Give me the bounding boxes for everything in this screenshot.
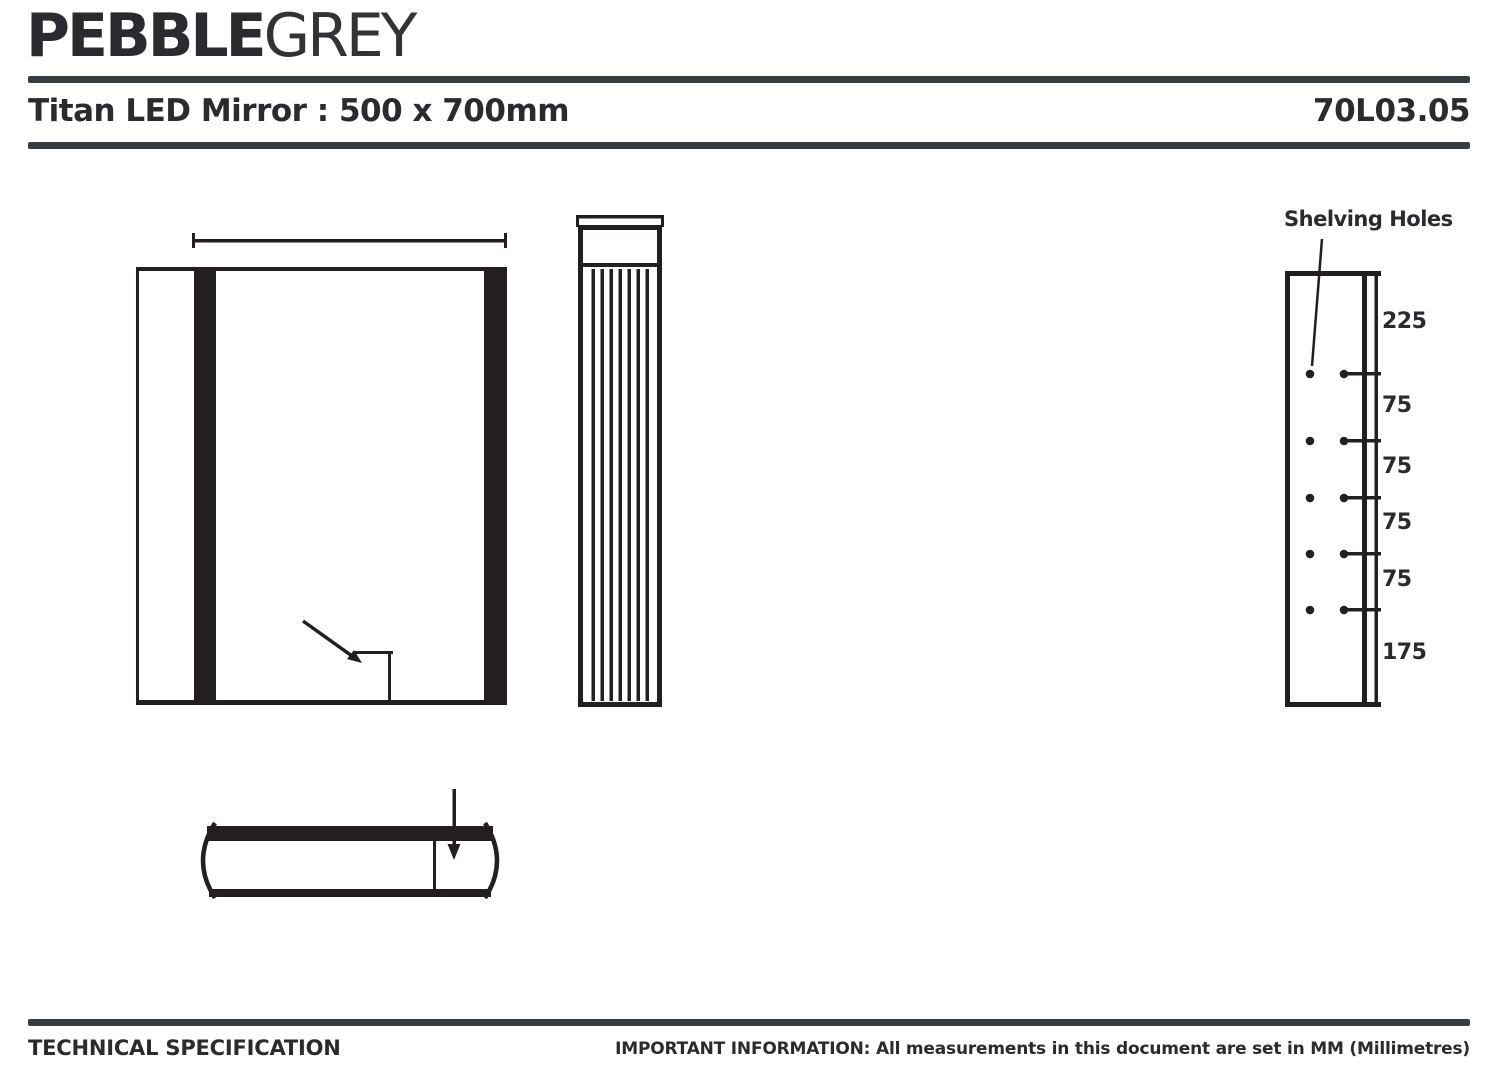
shelving-dim-75-3: 75 bbox=[1382, 512, 1412, 534]
spec-sheet-page: PEBBLEGREY Titan LED Mirror : 500 x 700m… bbox=[0, 0, 1500, 1072]
shelving-dim-75-2: 75 bbox=[1382, 456, 1412, 478]
bottom-view-top-band bbox=[207, 826, 493, 841]
shelving-dim-225: 225 bbox=[1382, 311, 1426, 333]
hole-dot bbox=[1306, 550, 1315, 559]
shelving-leader-line bbox=[1312, 239, 1322, 366]
hole-dot bbox=[1306, 437, 1315, 446]
mirror-top-edge bbox=[136, 267, 507, 271]
shelving-dim-175: 175 bbox=[1382, 642, 1426, 664]
hole-dot bbox=[1306, 494, 1315, 503]
shelving-holes bbox=[1306, 370, 1349, 615]
shelving-panel-bottom-edge bbox=[1285, 702, 1381, 707]
side-view-drawing bbox=[576, 215, 664, 705]
footer-note-prefix: IMPORTANT INFORMATION: bbox=[615, 1039, 870, 1059]
hole-dot bbox=[1340, 550, 1349, 559]
sensor-dimension-tick bbox=[355, 651, 393, 654]
bottom-view-bottom-edge bbox=[209, 889, 491, 897]
shelving-panel-outline bbox=[1288, 274, 1365, 705]
bottom-view-arrow-line bbox=[453, 789, 457, 847]
height-dimension-line bbox=[136, 267, 139, 705]
hole-dot bbox=[1340, 606, 1349, 615]
side-profile-divider bbox=[578, 263, 662, 267]
hole-dot bbox=[1306, 606, 1315, 615]
width-dimension-tick-right bbox=[504, 233, 507, 248]
hole-dot bbox=[1306, 370, 1315, 379]
led-strip-right bbox=[484, 271, 507, 701]
bottom-view-divider bbox=[433, 841, 436, 889]
bottom-view-arrowhead bbox=[448, 844, 461, 860]
width-dimension-line bbox=[193, 239, 507, 243]
hole-dot bbox=[1340, 494, 1349, 503]
shelving-panel-drawing bbox=[1285, 239, 1381, 707]
mirror-bottom-edge bbox=[136, 700, 507, 705]
sensor-dimension-line bbox=[388, 651, 391, 703]
footer-measurement-note: IMPORTANT INFORMATION: All measurements … bbox=[615, 1039, 1470, 1059]
technical-drawing-canvas bbox=[0, 0, 1500, 1072]
bottom-view-drawing bbox=[203, 789, 497, 898]
led-strip-left bbox=[194, 271, 216, 701]
footer-section-title: TECHNICAL SPECIFICATION bbox=[28, 1036, 341, 1060]
shelving-holes-label: Shelving Holes bbox=[1284, 207, 1453, 231]
depth-dimension-line bbox=[576, 215, 664, 219]
shelving-dimension-line bbox=[1375, 274, 1379, 705]
shelving-panel-top-edge bbox=[1285, 271, 1381, 276]
hole-dot bbox=[1340, 370, 1349, 379]
width-dimension-tick-left bbox=[192, 233, 195, 248]
front-view-drawing bbox=[136, 233, 507, 705]
shelving-dim-75-1: 75 bbox=[1382, 395, 1412, 417]
hole-dot bbox=[1340, 437, 1349, 446]
footer-divider bbox=[28, 1019, 1470, 1026]
shelving-dim-75-4: 75 bbox=[1382, 569, 1412, 591]
sensor-leader-line bbox=[303, 621, 352, 656]
side-profile-ribs bbox=[592, 269, 650, 701]
footer-note-text: All measurements in this document are se… bbox=[870, 1039, 1470, 1059]
